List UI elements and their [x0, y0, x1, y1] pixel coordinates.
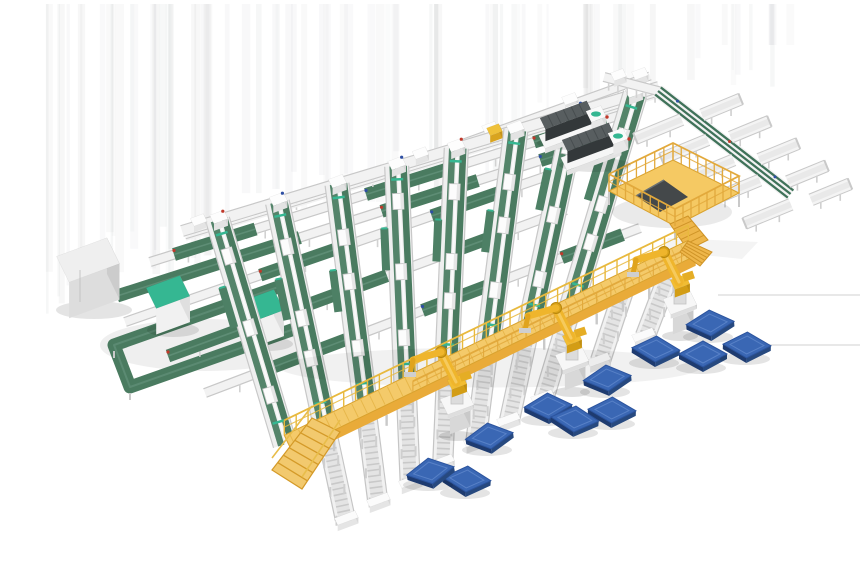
teal-top-machine-1	[146, 276, 199, 338]
outfeed-table	[728, 115, 772, 146]
pallet-stack	[676, 341, 727, 374]
outfeed-table	[809, 178, 853, 209]
outfeed-table	[699, 93, 743, 124]
outfeed-table	[742, 198, 793, 231]
outfeed-table	[757, 138, 801, 169]
outfeed-table	[659, 134, 710, 167]
factory-render-image	[0, 0, 860, 580]
outfeed-table	[785, 160, 829, 191]
sorting-palletizing-line-scene	[0, 0, 860, 580]
